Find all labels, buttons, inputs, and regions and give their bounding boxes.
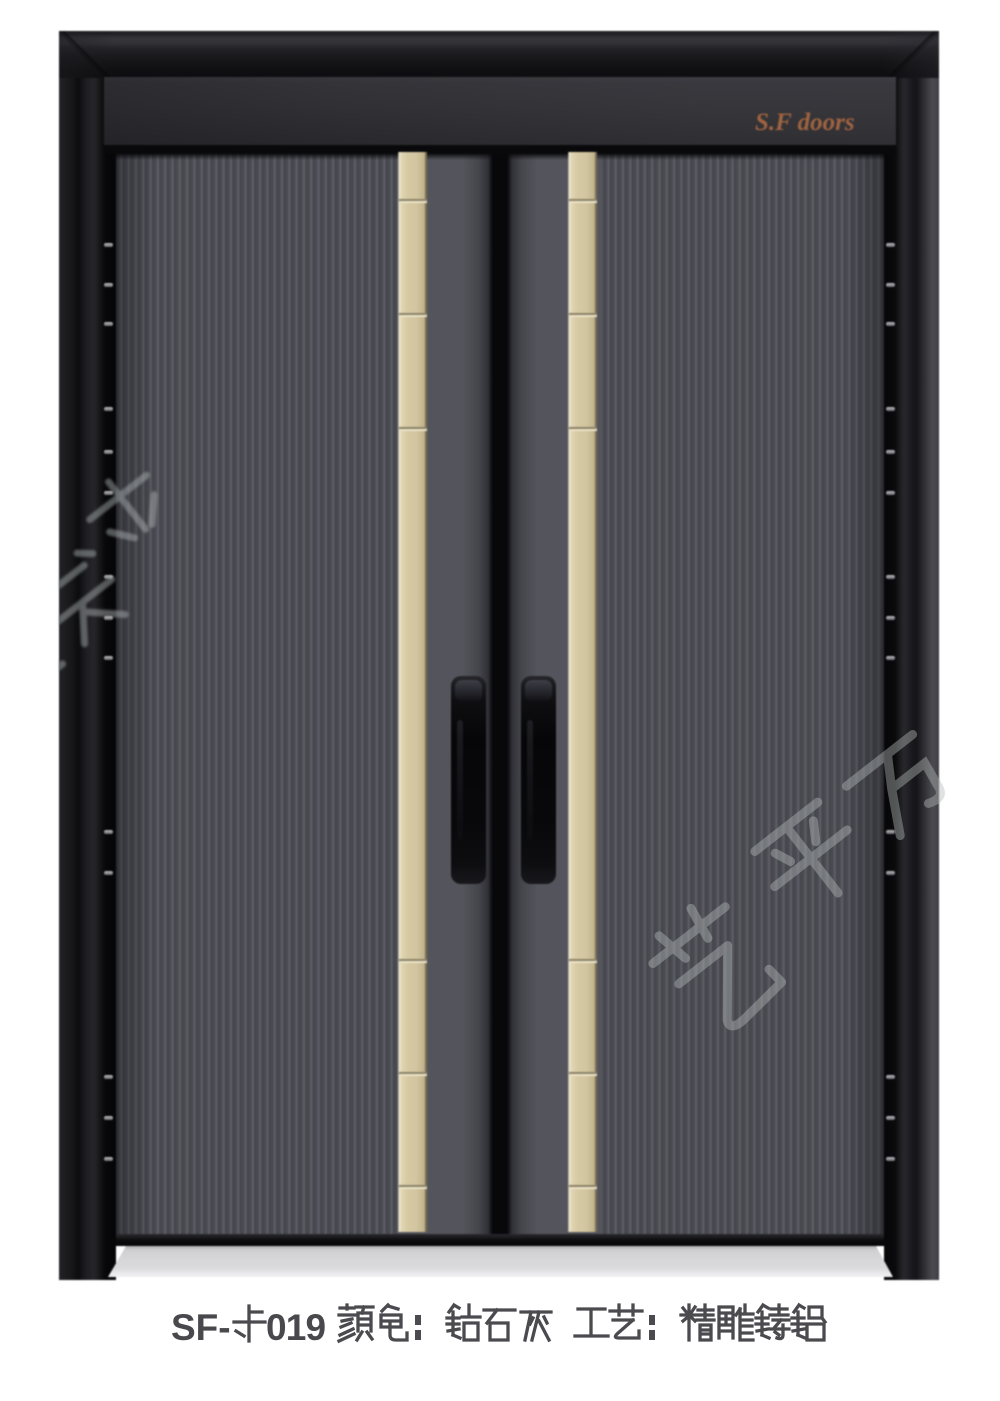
svg-text:SF-: SF- [171, 1307, 231, 1348]
svg-text:019: 019 [266, 1307, 326, 1348]
